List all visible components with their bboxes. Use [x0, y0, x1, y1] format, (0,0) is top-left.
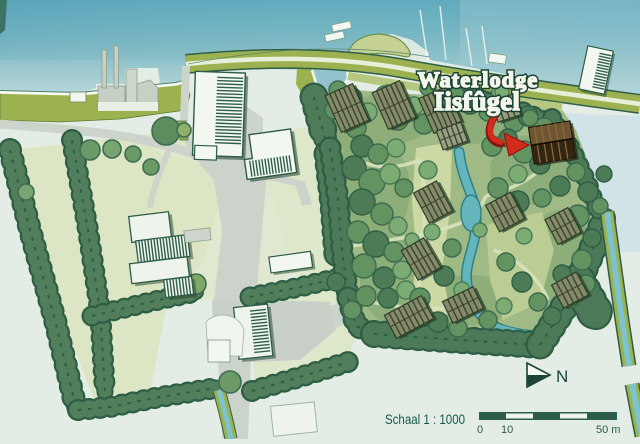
- svg-text:N: N: [556, 367, 568, 386]
- svg-text:Iisfûgel: Iisfûgel: [434, 87, 520, 116]
- svg-text:50 m: 50 m: [596, 424, 620, 436]
- svg-text:10: 10: [501, 424, 513, 436]
- svg-text:Schaal 1 : 1000: Schaal 1 : 1000: [385, 411, 465, 427]
- svg-text:0: 0: [477, 424, 483, 436]
